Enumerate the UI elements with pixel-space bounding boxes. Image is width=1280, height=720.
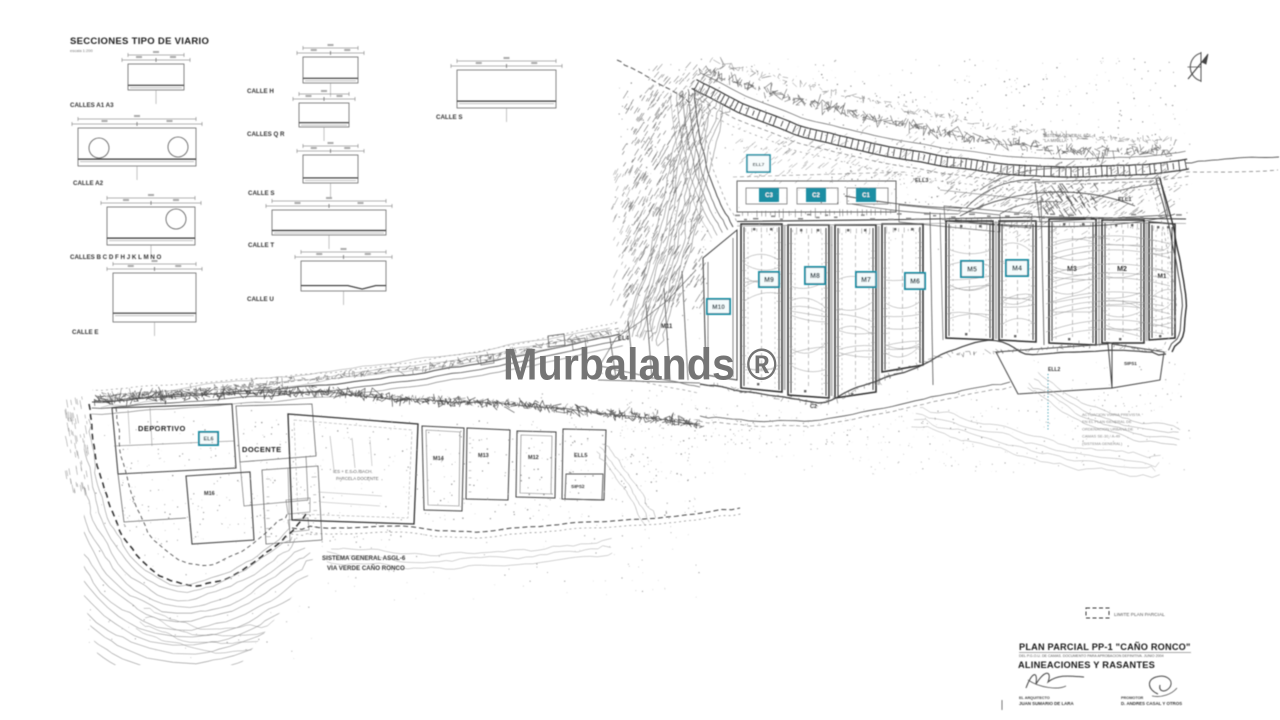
svg-text:M1: M1 bbox=[1157, 273, 1166, 280]
svg-text:CALLES Q R: CALLES Q R bbox=[247, 131, 285, 138]
svg-text:M16: M16 bbox=[204, 491, 215, 497]
svg-text:Murbalands ®: Murbalands ® bbox=[503, 341, 777, 390]
svg-text:C2: C2 bbox=[810, 404, 817, 410]
svg-text:CALLE S: CALLE S bbox=[436, 114, 462, 121]
svg-text:M9: M9 bbox=[764, 277, 774, 284]
svg-text:M14: M14 bbox=[433, 456, 445, 462]
svg-text:SECCIONES TIPO DE VIARIO: SECCIONES TIPO DE VIARIO bbox=[70, 36, 209, 47]
svg-text:M4: M4 bbox=[1012, 266, 1022, 273]
svg-text:M5: M5 bbox=[967, 267, 977, 274]
svg-text:SISTEMA GENERAL ASGL-6: SISTEMA GENERAL ASGL-6 bbox=[322, 555, 406, 562]
svg-text:PROMOTOR: PROMOTOR bbox=[1121, 696, 1144, 700]
svg-text:escala 1:200: escala 1:200 bbox=[70, 48, 93, 53]
svg-text:CALLES B C D F H J K L M N O: CALLES B C D F H J K L M N O bbox=[70, 254, 162, 261]
svg-text:ELL1: ELL1 bbox=[1118, 197, 1131, 203]
svg-text:M6: M6 bbox=[910, 279, 920, 286]
svg-text:M3: M3 bbox=[1067, 266, 1077, 273]
svg-text:PARCELA DOCENTE: PARCELA DOCENTE bbox=[336, 476, 379, 481]
svg-text:CAMAS SE-30 / A-49: CAMAS SE-30 / A-49 bbox=[1082, 434, 1121, 439]
svg-text:DEL P.G.O.U. DE CAMAS. DOCUMEN: DEL P.G.O.U. DE CAMAS. DOCUMENTO PARA AP… bbox=[1019, 654, 1164, 658]
svg-text:D. ANDRES CASAL Y OTROS: D. ANDRES CASAL Y OTROS bbox=[1121, 701, 1182, 706]
svg-text:M11: M11 bbox=[661, 324, 673, 330]
svg-text:CALLE A2: CALLE A2 bbox=[73, 180, 104, 187]
svg-text:M13: M13 bbox=[478, 453, 489, 459]
svg-text:JUAN SUMARIO DE LARA: JUAN SUMARIO DE LARA bbox=[1019, 701, 1074, 706]
svg-text:(SISTEMA GENERAL): (SISTEMA GENERAL) bbox=[1082, 441, 1123, 446]
svg-text:CALLE S: CALLE S bbox=[248, 190, 274, 197]
svg-text:"LA MINILLA": "LA MINILLA" bbox=[1043, 138, 1069, 143]
svg-text:C1: C1 bbox=[862, 193, 870, 199]
svg-text:CALLE U: CALLE U bbox=[247, 296, 274, 303]
svg-text:CALLES A1 A3: CALLES A1 A3 bbox=[70, 102, 114, 109]
svg-text:CALLE H: CALLE H bbox=[247, 88, 274, 95]
svg-text:DEPORTIVO: DEPORTIVO bbox=[138, 424, 186, 433]
svg-text:SIPS1: SIPS1 bbox=[1124, 361, 1137, 366]
svg-text:ELL5: ELL5 bbox=[574, 453, 587, 459]
svg-text:ELL7: ELL7 bbox=[753, 162, 765, 168]
svg-text:VIA VERDE CAÑO RONCO: VIA VERDE CAÑO RONCO bbox=[327, 565, 405, 572]
svg-text:DOCENTE: DOCENTE bbox=[242, 445, 281, 454]
svg-text:ELL3: ELL3 bbox=[915, 178, 928, 184]
svg-text:M10: M10 bbox=[712, 304, 725, 311]
svg-text:M8: M8 bbox=[810, 273, 820, 280]
svg-text:ALINEACIONES Y RASANTES: ALINEACIONES Y RASANTES bbox=[1018, 660, 1155, 670]
svg-text:C3: C3 bbox=[765, 193, 773, 199]
svg-text:C2: C2 bbox=[812, 193, 820, 199]
svg-text:EL ARQUITECTO: EL ARQUITECTO bbox=[1019, 696, 1050, 700]
svg-text:CALLE T: CALLE T bbox=[248, 242, 274, 249]
svg-text:ACTUACION VIARIA PREVISTA: ACTUACION VIARIA PREVISTA bbox=[1082, 412, 1140, 417]
svg-text:PLAN PARCIAL PP-1 "CAÑO RONCO": PLAN PARCIAL PP-1 "CAÑO RONCO" bbox=[1019, 642, 1191, 652]
svg-text:EL6: EL6 bbox=[203, 436, 213, 442]
svg-text:CALLE E: CALLE E bbox=[72, 329, 98, 336]
svg-text:M2: M2 bbox=[1117, 266, 1127, 273]
svg-text:LIMITE PLAN PARCIAL: LIMITE PLAN PARCIAL bbox=[1114, 612, 1165, 618]
svg-text:M12: M12 bbox=[528, 455, 539, 461]
svg-text:M7: M7 bbox=[861, 277, 871, 284]
svg-text:ELL2: ELL2 bbox=[1048, 367, 1060, 373]
